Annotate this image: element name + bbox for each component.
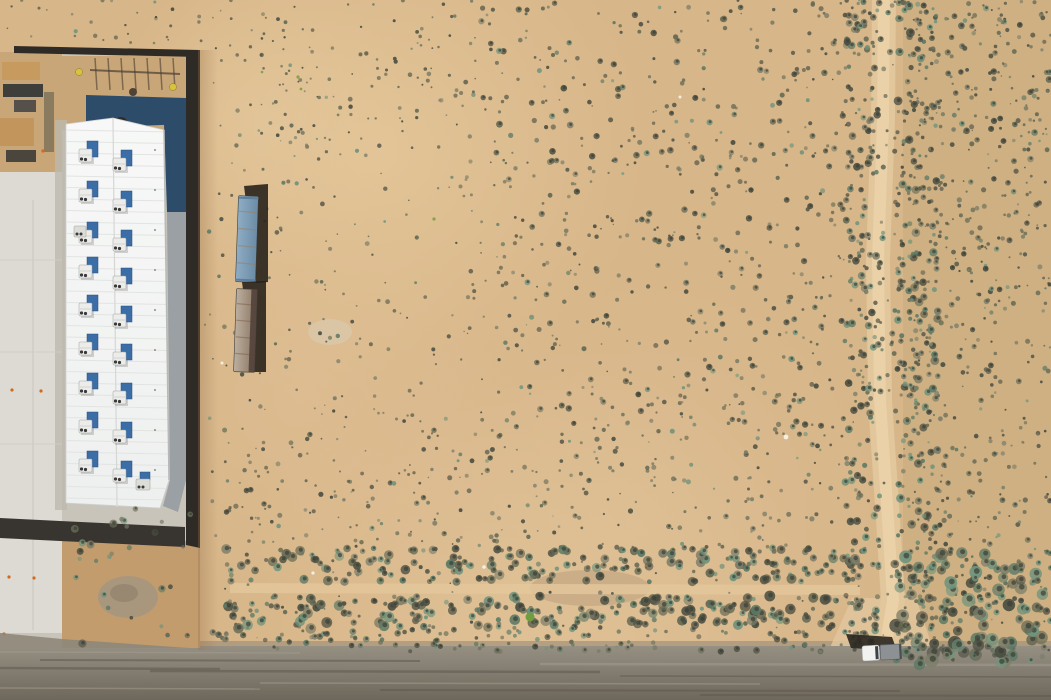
shrub (926, 501, 930, 505)
shrub (268, 505, 272, 509)
shrub (593, 224, 597, 228)
aerial-photo (0, 0, 1051, 700)
shrub (480, 220, 483, 223)
shrub (857, 251, 861, 255)
shrub (617, 629, 621, 633)
dust-edge (198, 50, 218, 650)
shrub (635, 501, 637, 503)
shrub (900, 393, 903, 396)
shrub (822, 276, 824, 278)
shrub (581, 145, 583, 147)
shrub (299, 211, 303, 215)
shrub (305, 178, 308, 181)
shrub (858, 442, 862, 446)
shrub (1020, 135, 1023, 138)
shrub (647, 21, 650, 24)
shrub (707, 20, 709, 22)
shrub (1001, 236, 1005, 240)
shrub (127, 33, 129, 35)
fan-dot (80, 238, 83, 241)
shrub (911, 348, 915, 352)
shrub (833, 224, 836, 227)
shrub (629, 382, 632, 385)
shrub (730, 285, 735, 290)
shrub (453, 14, 456, 17)
shrub (304, 508, 308, 512)
shrub (385, 69, 388, 72)
shrub (399, 117, 401, 119)
shrub (1045, 128, 1047, 130)
shrub (537, 68, 542, 73)
shrub (711, 187, 716, 192)
shrub (1037, 434, 1039, 436)
shrub (899, 333, 904, 338)
shrub (370, 85, 373, 88)
shrub (368, 236, 370, 238)
shrub (795, 243, 800, 248)
fan-dot (80, 389, 83, 392)
shrub (529, 393, 531, 395)
shrub (229, 573, 234, 578)
shrub (458, 453, 462, 457)
shrub (849, 159, 853, 163)
shrub (414, 281, 417, 284)
shrub (811, 488, 814, 491)
shrub (915, 131, 919, 135)
shrub (334, 270, 336, 272)
shrub (513, 328, 518, 333)
shrub (779, 489, 783, 493)
shrub (809, 516, 814, 521)
shrub (276, 17, 280, 21)
shrub (428, 39, 430, 41)
white-concrete-strip (0, 172, 62, 633)
shrub (735, 359, 739, 363)
shrub (844, 456, 849, 461)
shrub (726, 499, 729, 502)
shrub (207, 229, 211, 233)
shrub (317, 157, 320, 160)
shrub (1001, 622, 1003, 624)
shrub (681, 416, 682, 417)
shrub (503, 255, 507, 259)
shrub (324, 608, 326, 610)
shrub (1024, 421, 1027, 424)
shrub (494, 533, 498, 537)
shrub (846, 193, 850, 197)
shrub (776, 223, 779, 226)
shrub (975, 206, 980, 211)
shrub (508, 505, 511, 508)
shrub (751, 387, 755, 391)
shrub (810, 648, 814, 652)
shrub (282, 48, 284, 50)
shrub (984, 577, 987, 580)
shrub (565, 212, 568, 215)
shrub (746, 497, 750, 501)
shrub (858, 491, 861, 494)
shrub (280, 140, 281, 141)
shrub (909, 174, 913, 178)
fan-dot (84, 312, 87, 315)
shrub (210, 499, 214, 503)
shrub (551, 53, 555, 57)
shrub (257, 517, 260, 520)
shrub (998, 511, 1001, 514)
shrub (332, 409, 335, 412)
shrub (694, 160, 699, 165)
shrub (467, 488, 472, 493)
shrub (291, 446, 293, 448)
shrub (526, 162, 528, 164)
shrub (512, 626, 516, 630)
shrub (864, 316, 868, 320)
shrub (934, 186, 938, 190)
shrub (878, 281, 883, 286)
shrub (670, 456, 674, 460)
shrub (890, 3, 895, 8)
shrub (355, 342, 358, 345)
equipment-dot (76, 69, 83, 76)
shrub (766, 452, 769, 455)
shrub (598, 619, 603, 624)
shrub (471, 283, 474, 286)
shrub (856, 240, 859, 243)
shrub (702, 88, 705, 91)
shrub (979, 42, 982, 45)
shrub (345, 416, 348, 419)
shrub (744, 450, 748, 454)
shrub (503, 605, 508, 610)
shrub (848, 260, 851, 263)
shrub (364, 51, 368, 55)
shrub (283, 610, 287, 614)
shrub (484, 108, 486, 110)
shrub (465, 474, 469, 478)
shrub (124, 24, 126, 26)
shrub (376, 58, 379, 61)
shrub (875, 9, 879, 13)
shrub (437, 46, 440, 49)
shrub (951, 179, 954, 182)
shrub (452, 543, 454, 545)
shrub (697, 236, 700, 239)
shrub (750, 531, 752, 533)
shrub (976, 338, 980, 342)
shrub (635, 219, 638, 222)
shrub (750, 257, 754, 261)
shrub (402, 630, 407, 635)
shrub (74, 35, 77, 38)
shrub (959, 213, 963, 217)
shrub (250, 613, 255, 618)
shrub (684, 436, 688, 440)
fan-dot (80, 311, 83, 314)
shrub (523, 530, 527, 534)
shrub (715, 579, 718, 582)
shrub (555, 338, 558, 341)
shrub (505, 162, 507, 164)
shrub (977, 471, 982, 476)
shrub (233, 504, 238, 509)
shrub (823, 434, 825, 436)
shrub (603, 513, 605, 515)
shrub (1046, 369, 1051, 374)
shrub (772, 549, 777, 554)
shrub (863, 98, 866, 101)
shrub (401, 130, 403, 132)
shrub (772, 306, 777, 311)
shrub (752, 597, 756, 601)
shrub (474, 78, 476, 80)
shrub (915, 412, 918, 415)
shrub (485, 450, 490, 455)
shrub (485, 280, 487, 282)
shrub (1045, 11, 1047, 13)
shrub (856, 373, 860, 377)
shrub (1044, 430, 1047, 433)
shrub (625, 233, 629, 237)
shrub (713, 237, 718, 242)
shrub (723, 337, 727, 341)
shrub (755, 45, 759, 49)
shrub (419, 420, 421, 422)
shrub (380, 173, 382, 175)
shrub (369, 342, 373, 346)
shrub (776, 176, 780, 180)
shrub (449, 34, 452, 37)
shrub (223, 604, 227, 608)
shrub (1008, 296, 1010, 298)
shrub (465, 178, 468, 181)
shrub (533, 484, 537, 488)
shrub (702, 377, 706, 381)
shrub (446, 114, 448, 116)
shrub (532, 174, 535, 177)
shrub (337, 233, 339, 235)
shrub (808, 121, 812, 125)
shrub (942, 518, 947, 523)
shrub (360, 26, 362, 28)
shrub (478, 647, 482, 651)
shrub (274, 342, 277, 345)
shrub (342, 601, 347, 606)
shrub (928, 537, 932, 541)
shrub (377, 412, 380, 415)
shrub (764, 298, 768, 302)
shrub (814, 462, 816, 464)
shrub (792, 398, 796, 402)
shrub (790, 143, 794, 147)
green-sprout (261, 71, 264, 74)
shrub (574, 286, 579, 291)
shrub (561, 160, 565, 164)
shrub (769, 241, 772, 244)
shrub (897, 110, 900, 113)
shrub (393, 57, 397, 61)
shrub (854, 488, 857, 491)
shrub (421, 548, 425, 552)
shrub (851, 549, 855, 553)
shrub (498, 358, 501, 361)
shrub (678, 525, 683, 530)
shrub (426, 79, 430, 83)
shrub (854, 400, 857, 403)
shrub (365, 450, 367, 452)
shrub (873, 388, 876, 391)
shrub (1023, 510, 1027, 514)
fan-dot (84, 158, 87, 161)
shrub (718, 355, 723, 360)
shrub (250, 517, 253, 520)
shrub (285, 72, 288, 75)
shrub (929, 199, 933, 203)
shrub (255, 609, 259, 613)
shrub (986, 248, 988, 250)
shrub (249, 399, 252, 402)
shrub (521, 349, 523, 351)
shrub (1001, 194, 1003, 196)
shrub (611, 79, 614, 82)
shipping-container-blue (236, 184, 268, 283)
shrub (495, 604, 500, 609)
shrub (1014, 169, 1019, 174)
shrub (695, 331, 698, 334)
shrub (511, 470, 514, 473)
shrub (914, 89, 918, 93)
shrub (821, 328, 824, 331)
shrub (160, 520, 164, 524)
shrub (474, 37, 476, 39)
shrub (648, 75, 651, 78)
shrub (415, 235, 419, 239)
shrub (566, 271, 570, 275)
shrub (918, 359, 920, 361)
shrub (260, 132, 263, 135)
shrub (493, 184, 495, 186)
shrub (919, 118, 923, 122)
shrub (591, 105, 593, 107)
shrub (613, 449, 618, 454)
shrub (615, 298, 619, 302)
shrub (598, 446, 602, 450)
shrub (451, 314, 453, 316)
shrub (950, 54, 954, 58)
shrub (1026, 148, 1030, 152)
shrub (261, 104, 263, 106)
shrub (336, 334, 340, 338)
shrub (550, 645, 554, 649)
shrub (316, 96, 318, 98)
shrub (934, 541, 938, 545)
shrub (504, 281, 509, 286)
shrub (766, 545, 770, 549)
shrub (965, 218, 970, 223)
shrub (289, 350, 292, 353)
shrub (859, 174, 863, 178)
shrub (479, 602, 484, 607)
shrub (823, 315, 826, 318)
shrub (917, 218, 921, 222)
shrub (588, 166, 592, 170)
shrub (969, 95, 974, 100)
shrub (802, 336, 805, 339)
shrub (287, 357, 291, 361)
shrub (729, 368, 733, 372)
shrub (924, 118, 926, 120)
shrub (576, 320, 579, 323)
shrub (511, 152, 513, 154)
shrub (908, 197, 912, 201)
shrub (860, 248, 865, 253)
shrub (598, 361, 602, 365)
shrub (295, 181, 299, 185)
shrub (982, 4, 984, 6)
shrub (775, 431, 778, 434)
shrub (229, 547, 231, 549)
shrub (960, 348, 963, 351)
shrub (275, 647, 279, 651)
shrub (575, 56, 580, 61)
shrub (259, 372, 261, 374)
shrub (491, 429, 494, 432)
shrub (431, 432, 433, 434)
shrub (569, 474, 573, 478)
shrub (804, 126, 806, 128)
shrub (504, 446, 506, 448)
shrub (684, 262, 688, 266)
shrub (898, 454, 902, 458)
shrub (222, 428, 227, 433)
shrub (1011, 301, 1016, 306)
shrub (459, 185, 463, 189)
shrub (740, 376, 744, 380)
shrub (607, 424, 610, 427)
shrub (218, 192, 221, 195)
shrub (893, 308, 898, 313)
shrub (1022, 95, 1027, 100)
shrub (531, 470, 533, 472)
shrub (169, 24, 172, 27)
shrub (421, 430, 424, 433)
shrub (1038, 118, 1042, 122)
shrub (924, 175, 929, 180)
shrub (740, 274, 742, 276)
shrub (468, 134, 472, 138)
shrub (793, 272, 796, 275)
shrub (592, 170, 596, 174)
shrub (450, 15, 453, 18)
shrub (851, 6, 854, 9)
shrub (580, 527, 583, 530)
shrub (427, 436, 431, 440)
shrub (289, 440, 294, 445)
shrub (393, 19, 396, 22)
shrub (572, 562, 576, 566)
shrub (731, 104, 736, 109)
shrub (876, 318, 881, 323)
shrub (321, 438, 323, 440)
shrub (472, 289, 476, 293)
shrub (874, 170, 879, 175)
shrub (1046, 90, 1049, 93)
shrub (395, 418, 398, 421)
shrub (727, 421, 731, 425)
shrub (285, 89, 287, 91)
shrub (94, 559, 98, 563)
shrub (972, 13, 977, 18)
shrub (468, 326, 472, 330)
